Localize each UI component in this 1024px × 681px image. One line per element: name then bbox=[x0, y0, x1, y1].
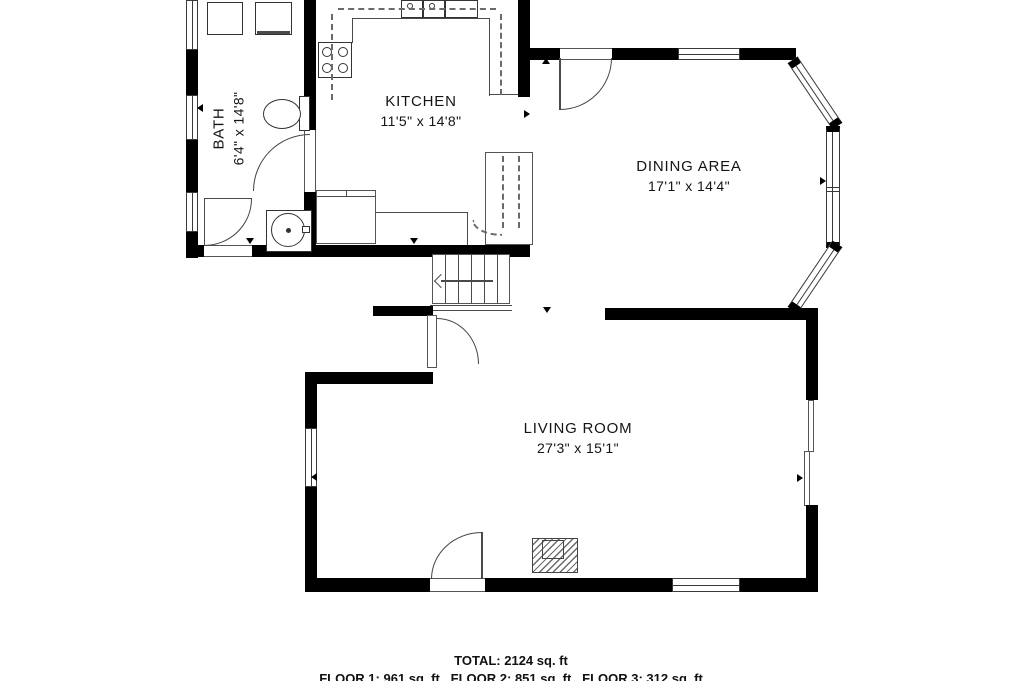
room-dims: 27'3" x 15'1" bbox=[478, 439, 678, 458]
wall bbox=[518, 0, 530, 97]
wall bbox=[305, 487, 317, 592]
door-opening bbox=[430, 578, 485, 592]
dryer-detail bbox=[257, 31, 290, 34]
room-dims: 11'5" x 14'8" bbox=[331, 112, 511, 131]
marker bbox=[797, 474, 803, 482]
wall bbox=[806, 308, 818, 400]
room-name: DINING AREA bbox=[599, 157, 779, 177]
cabinet-detail bbox=[346, 190, 347, 197]
marker bbox=[609, 579, 617, 585]
base-cabinet bbox=[316, 190, 376, 244]
burner bbox=[338, 47, 348, 57]
window bbox=[678, 48, 740, 60]
marker bbox=[410, 238, 418, 244]
stair-edge bbox=[430, 305, 512, 306]
window bbox=[186, 95, 198, 140]
window bbox=[186, 0, 198, 50]
upper-cabinet-line bbox=[500, 14, 502, 95]
total-area-text: TOTAL: 2124 sq. ft bbox=[361, 653, 661, 669]
sliding-door-panel bbox=[808, 400, 814, 452]
fireplace-firebox bbox=[542, 540, 564, 559]
wall bbox=[373, 306, 433, 316]
upper-cabinet-line bbox=[338, 8, 496, 10]
marker bbox=[542, 58, 550, 64]
room-label-bath: BATH 6'4" x 14'8" bbox=[210, 54, 249, 204]
room-label-dining: DINING AREA 17'1" x 14'4" bbox=[599, 157, 779, 196]
room-label-kitchen: KITCHEN 11'5" x 14'8" bbox=[331, 92, 511, 131]
room-dims: 17'1" x 14'4" bbox=[599, 177, 779, 196]
room-name: BATH bbox=[210, 54, 230, 204]
counter-edge bbox=[352, 18, 353, 43]
window bbox=[672, 578, 740, 592]
counter-edge bbox=[375, 212, 468, 213]
marker bbox=[246, 238, 254, 244]
upper-cabinet-line bbox=[502, 156, 504, 228]
floor-areas-text: FLOOR 1: 961 sq. ft FLOOR 2: 851 sq. ft … bbox=[281, 671, 741, 681]
sliding-door-panel bbox=[804, 451, 810, 506]
upper-cabinet-line bbox=[472, 220, 502, 236]
counter-edge bbox=[467, 212, 468, 245]
wall bbox=[740, 578, 818, 592]
stair-edge bbox=[430, 310, 512, 311]
bath-door-arc bbox=[253, 134, 310, 191]
bay-window-lower bbox=[788, 240, 843, 313]
wall bbox=[485, 578, 672, 592]
wall bbox=[305, 372, 433, 384]
marker bbox=[311, 473, 317, 481]
wall bbox=[305, 578, 430, 592]
burner bbox=[338, 63, 348, 73]
window bbox=[186, 192, 198, 232]
wall bbox=[186, 140, 198, 192]
door-opening bbox=[204, 245, 252, 257]
door-frame bbox=[427, 315, 437, 368]
stair-tread bbox=[484, 254, 485, 304]
room-name: LIVING ROOM bbox=[478, 419, 678, 439]
wall bbox=[186, 50, 198, 95]
wall bbox=[740, 48, 796, 60]
wall bbox=[612, 48, 678, 60]
door-arc bbox=[437, 318, 479, 364]
wall bbox=[305, 384, 317, 428]
counter-edge bbox=[489, 18, 490, 96]
sink-drain bbox=[286, 228, 291, 233]
room-dims: 6'4" x 14'8" bbox=[230, 54, 249, 204]
marker bbox=[820, 177, 826, 185]
entry-door-arc bbox=[560, 58, 612, 110]
floor-plan: KITCHEN 11'5" x 14'8" BATH 6'4" x 14'8" … bbox=[0, 0, 1024, 681]
marker bbox=[197, 104, 203, 112]
stair-tread bbox=[458, 254, 459, 304]
stair-tread bbox=[497, 254, 498, 304]
stair-direction-arrow bbox=[441, 280, 493, 282]
wall bbox=[186, 245, 204, 257]
upper-cabinet-line bbox=[518, 156, 520, 228]
stair-tread bbox=[471, 254, 472, 304]
washer bbox=[207, 2, 243, 35]
bay-window-upper bbox=[788, 56, 843, 129]
counter-edge bbox=[352, 18, 490, 19]
marker bbox=[543, 307, 551, 313]
sink-tap bbox=[302, 226, 310, 233]
room-label-living: LIVING ROOM 27'3" x 15'1" bbox=[478, 419, 678, 458]
upper-cabinet-line bbox=[331, 14, 333, 100]
marker bbox=[613, 314, 621, 320]
room-name: KITCHEN bbox=[331, 92, 511, 112]
wall bbox=[605, 308, 818, 320]
toilet-bowl bbox=[263, 99, 301, 129]
marker bbox=[524, 110, 530, 118]
bay-window-center bbox=[826, 126, 840, 248]
door-arc bbox=[431, 532, 482, 579]
door-arc bbox=[204, 199, 252, 246]
